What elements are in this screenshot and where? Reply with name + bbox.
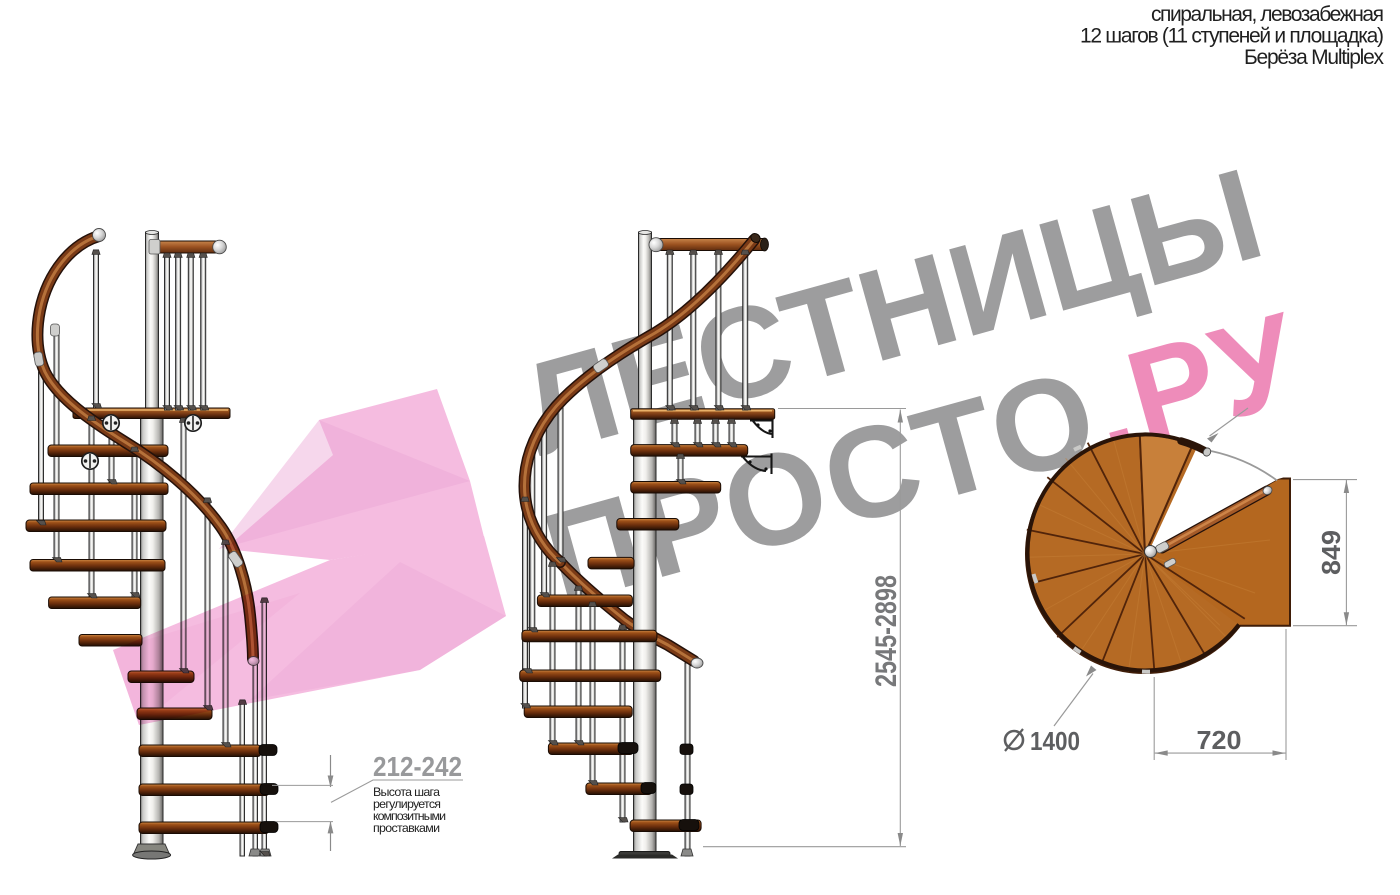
svg-text:проставками: проставками — [373, 821, 440, 835]
svg-text:849: 849 — [1318, 530, 1346, 575]
svg-text:212-242: 212-242 — [373, 751, 462, 782]
svg-text:спиральная, левозабежная: спиральная, левозабежная — [1151, 3, 1384, 26]
svg-text:Берёза Multiplex: Берёза Multiplex — [1244, 46, 1385, 69]
svg-text:720: 720 — [1197, 727, 1242, 755]
svg-text:2545-2898: 2545-2898 — [870, 575, 903, 687]
svg-text:1400: 1400 — [1030, 728, 1080, 756]
svg-text:12 шагов (11 ступеней и площад: 12 шагов (11 ступеней и площадка) — [1080, 25, 1384, 48]
